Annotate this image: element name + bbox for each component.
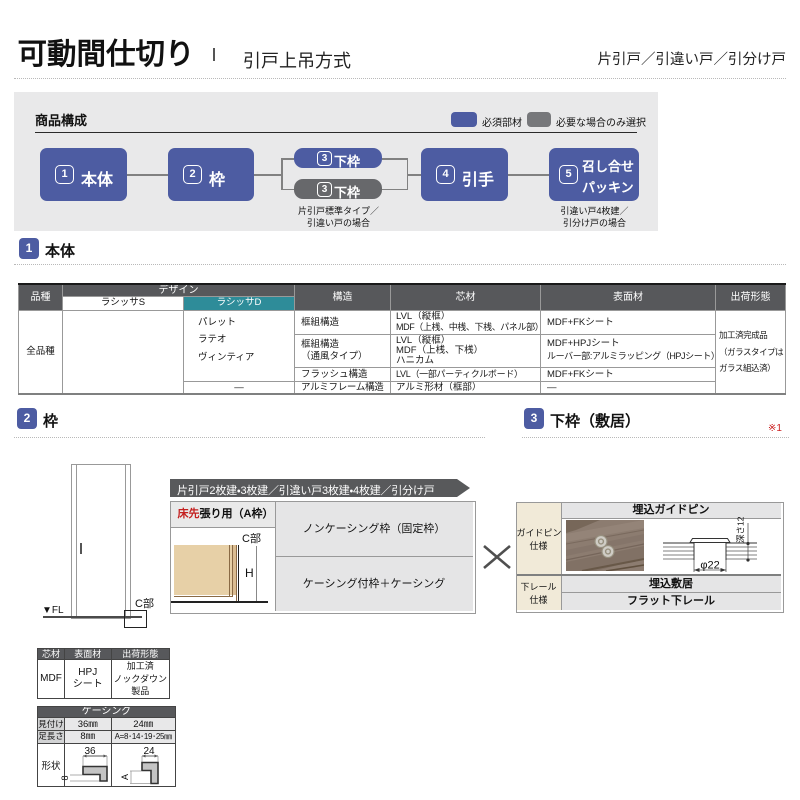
svg-text:φ22: φ22 (700, 560, 719, 572)
svg-text:深さ12: 深さ12 (736, 516, 746, 543)
svg-text:8: 8 (60, 775, 70, 780)
svg-text:A: A (120, 774, 130, 780)
